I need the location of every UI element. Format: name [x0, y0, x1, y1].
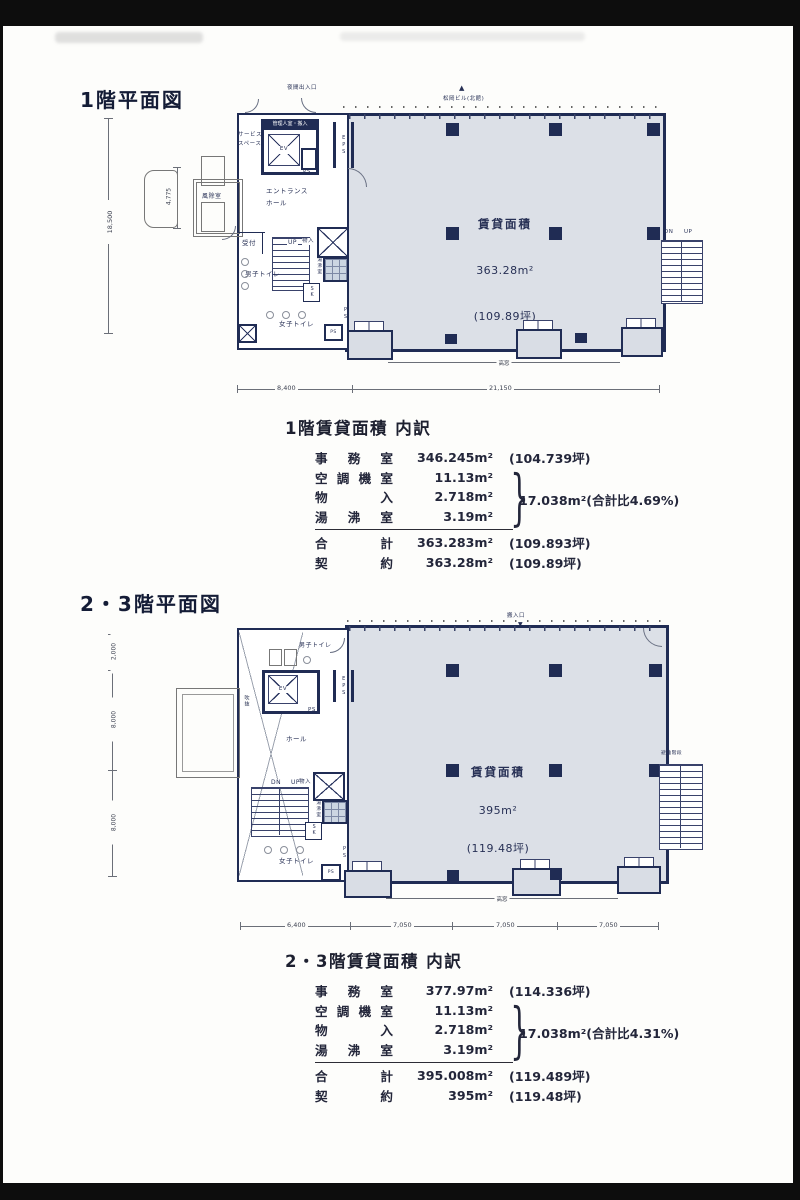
- table-contract-row: 契約 363.28m² (109.89坪): [285, 553, 715, 573]
- dim-tick: [658, 922, 659, 930]
- column: [549, 664, 562, 677]
- toilet-fixture: [282, 311, 290, 319]
- scan-smudge: [55, 32, 203, 43]
- toilet-fixture: [241, 270, 249, 278]
- ext-stair-up-label: UP: [684, 229, 692, 236]
- sk-label: SK: [308, 287, 314, 299]
- mens-toilet-label: 男子トイレ: [245, 270, 280, 278]
- row-value: 2.718m²: [393, 1022, 493, 1037]
- toilet-fixture: [298, 311, 306, 319]
- toilet-stall: [269, 649, 282, 666]
- toilet-fixture: [264, 846, 272, 854]
- planter-shape: [144, 170, 178, 228]
- dim-cap: [108, 770, 117, 771]
- row-value: 11.13m²: [393, 1003, 493, 1018]
- sk-closet: SK: [303, 283, 320, 302]
- kitchenette-sink: [323, 257, 349, 282]
- column: [549, 123, 562, 136]
- row-value: 363.28m²: [393, 555, 493, 570]
- highwindow-line: 高窓: [388, 362, 620, 363]
- dim-8000: 8,000: [111, 698, 118, 742]
- atrium-label: 吹抜: [243, 695, 250, 707]
- row-label: 契約: [315, 1086, 393, 1105]
- entrance-porch: [516, 329, 562, 359]
- ev-label: EV: [279, 146, 289, 153]
- sk-closet: SK: [305, 822, 322, 840]
- rental-area-tsubo: (119.48坪): [443, 839, 553, 858]
- stair-up-label: UP: [287, 239, 298, 247]
- row-value: 3.19m²: [393, 509, 493, 524]
- column: [649, 664, 662, 677]
- ext-stair-dn-label: DN: [664, 229, 673, 236]
- ev-label: EV: [278, 686, 288, 693]
- windbreak-label: 風除室: [202, 193, 222, 201]
- admin-room-label: 管理人室・搬入: [272, 121, 307, 128]
- bench-shape: [201, 202, 225, 232]
- entrance-porch: [621, 327, 663, 357]
- dim-2000: 2,000: [111, 630, 118, 674]
- dim-6400: 6,400: [285, 921, 308, 929]
- ps-box: [301, 148, 317, 170]
- toilet-fixture: [266, 311, 274, 319]
- row-note: (119.48坪): [509, 1086, 582, 1105]
- table-brace-note: 17.038m²(合計比4.31%): [519, 1023, 679, 1042]
- column: [647, 123, 660, 136]
- door-arc: [245, 99, 259, 113]
- dim-cap: [104, 333, 113, 334]
- row-label: 契約: [315, 553, 393, 572]
- stairs: [251, 787, 309, 837]
- partition: [237, 232, 265, 233]
- table-brace-note: 17.038m²(合計比4.69%): [519, 490, 679, 509]
- row-value: 2.718m²: [393, 489, 493, 504]
- column: [447, 870, 459, 882]
- row-label: 湯沸室: [315, 1040, 393, 1059]
- kitchenette-label: 湯沸室: [315, 257, 321, 274]
- rental-area-text: 賃貸面積 395m² (119.48坪): [443, 744, 553, 877]
- dim-7050: 7,050: [494, 921, 517, 929]
- night-exit-label: 夜間出入口: [287, 85, 317, 92]
- north-building-label: 松岡ビル(北館): [443, 96, 484, 103]
- row-note: (119.489坪): [509, 1066, 590, 1085]
- document-sheet: 1階平面図 夜間出入口 ▲ 松岡ビル(北館) 賃貸面積 363.28m² (10…: [3, 26, 793, 1183]
- ps-label: PS: [308, 707, 316, 714]
- row-label: 空調機室: [315, 468, 393, 487]
- eps-room: EPS: [333, 122, 354, 168]
- toilet-fixture: [296, 846, 304, 854]
- table-row: 事務室 377.97m² (114.336坪): [285, 981, 715, 1001]
- grid-dots: [347, 620, 669, 622]
- ps-shaft-label: PS: [341, 846, 348, 860]
- ps-box-bottom: PS: [324, 324, 343, 341]
- storage-label: 物入: [302, 238, 314, 245]
- eps-label: EPS: [340, 676, 347, 697]
- dim-tick: [350, 922, 351, 930]
- area-table-1f: 1階賃貸面積 内訳 事務室 346.245m² (104.739坪) 空調機室 …: [285, 415, 715, 572]
- dim-7050: 7,050: [391, 921, 414, 929]
- row-note: (109.89坪): [509, 553, 582, 572]
- row-value: 3.19m²: [393, 1042, 493, 1057]
- scan-frame-top: [0, 0, 800, 26]
- door-arc: [301, 98, 316, 113]
- table-row: 事務室 346.245m² (104.739坪): [285, 448, 715, 468]
- dim-line-bottom: [237, 389, 660, 390]
- atrium-opening-inner: [182, 694, 234, 772]
- column: [647, 227, 660, 240]
- dim-cap: [104, 118, 113, 119]
- entrance-porch: [347, 330, 393, 360]
- entrance-hall-label: エントランス ホール: [266, 185, 308, 210]
- row-value: 363.283m²: [393, 535, 493, 550]
- atrium-void-lines: [239, 632, 303, 876]
- toilet-fixture: [303, 656, 311, 664]
- row-label: 事務室: [315, 448, 393, 467]
- stair-divider: [681, 240, 682, 302]
- table-row: 湯沸室 3.19m²: [285, 507, 715, 527]
- table-rule: [315, 529, 513, 530]
- stair-divider: [279, 787, 280, 835]
- entrance-porch: [617, 866, 661, 894]
- highwindow-label: 高窓: [496, 359, 511, 367]
- dim-tick: [352, 385, 353, 393]
- row-value: 346.245m²: [393, 450, 493, 465]
- mens-toilet-label: 男子トイレ: [299, 642, 332, 650]
- plan1-title: 1階平面図: [80, 84, 184, 113]
- window-mullions: [349, 626, 660, 631]
- grid-dots: [343, 106, 665, 108]
- table-rule: [315, 1062, 513, 1063]
- storage-label: 物入: [299, 779, 311, 786]
- duct-hatch: [238, 324, 257, 343]
- row-value: 395m²: [393, 1088, 493, 1103]
- scan-frame-right: [793, 0, 800, 1200]
- highwindow-line: 高窓: [386, 898, 618, 899]
- rental-area-label: 賃貸面積: [443, 763, 553, 782]
- table-total-row: 合計 363.283m² (109.893坪): [285, 533, 715, 553]
- column: [445, 334, 457, 344]
- dim-21150: 21,150: [487, 384, 514, 392]
- row-label: 物入: [315, 487, 393, 506]
- stair-dn-label: DN: [271, 779, 281, 787]
- eps-room: EPS: [333, 670, 354, 702]
- escape-stair-label: 避難階段: [661, 751, 682, 757]
- reception-label: 受付: [242, 239, 256, 247]
- dim-8400: 8,400: [275, 384, 298, 392]
- womens-toilet-label: 女子トイレ: [279, 320, 314, 328]
- storage-hatch: [313, 772, 345, 801]
- column: [446, 664, 459, 677]
- ps-bottom-label: PS: [328, 870, 335, 876]
- dim-8000b: 8,000: [111, 801, 118, 845]
- external-stairs: [661, 240, 703, 304]
- ev-car: EV: [268, 675, 298, 704]
- stair-divider: [680, 764, 681, 848]
- kitchenette-label: 湯沸室: [314, 800, 320, 817]
- dim-cap: [173, 167, 181, 168]
- toilet-fixture: [280, 846, 288, 854]
- bench-shape: [201, 156, 225, 186]
- table-row: 湯沸室 3.19m²: [285, 1040, 715, 1060]
- column: [575, 333, 587, 343]
- highwindow-label: 高窓: [494, 895, 509, 903]
- dim-tick: [237, 385, 238, 393]
- escape-stairs: [659, 764, 703, 850]
- column: [550, 868, 562, 880]
- row-label: 事務室: [315, 981, 393, 1000]
- row-note: (109.893坪): [509, 533, 590, 552]
- window-mullions: [349, 114, 657, 119]
- storage-hatch: [317, 227, 349, 258]
- eps-label: EPS: [340, 135, 347, 156]
- toilet-fixture: [241, 282, 249, 290]
- partition: [262, 232, 263, 254]
- scan-smudge: [340, 32, 585, 41]
- rental-area-label: 賃貸面積: [450, 213, 560, 236]
- row-label: 合計: [315, 533, 393, 552]
- row-value: 395.008m²: [393, 1068, 493, 1083]
- rental-area-m2: 395m²: [443, 801, 553, 820]
- plan2-title: 2・3階平面図: [80, 588, 222, 617]
- dim-7050: 7,050: [597, 921, 620, 929]
- table-contract-row: 契約 395m² (119.48坪): [285, 1086, 715, 1106]
- dim-tick: [659, 385, 660, 393]
- entrance-porch: [344, 870, 392, 898]
- kitchenette-sink: [322, 800, 348, 824]
- service-space-label: サービス スペース: [238, 131, 262, 149]
- row-label: 物入: [315, 1020, 393, 1039]
- toilet-stall: [284, 649, 297, 666]
- womens-toilet-label: 女子トイレ: [279, 857, 314, 865]
- admin-room-band: 管理人室・搬入: [261, 119, 319, 130]
- hall-label: ホール: [286, 735, 307, 743]
- dim-18500: 18,500: [106, 200, 114, 244]
- table1-title: 1階賃貸面積 内訳: [285, 415, 715, 439]
- dim-tick: [557, 922, 558, 930]
- dim-tick: [240, 922, 241, 930]
- row-label: 湯沸室: [315, 507, 393, 526]
- north-building-marker-icon: ▲: [459, 84, 465, 93]
- table-row: 空調機室 11.13m²: [285, 468, 715, 488]
- ps-bottom-label: PS: [330, 330, 337, 336]
- ps-shaft-label: PS: [342, 307, 349, 321]
- sk-label: SK: [310, 825, 316, 837]
- dim-cap: [108, 876, 117, 877]
- ps-label: PS: [303, 169, 311, 176]
- table2-title: 2・3階賃貸面積 内訳: [285, 948, 715, 972]
- dim-cap: [173, 228, 181, 229]
- ev-car: EV: [268, 134, 300, 166]
- row-label: 空調機室: [315, 1001, 393, 1020]
- table-total-row: 合計 395.008m² (119.489坪): [285, 1066, 715, 1086]
- ps-box-bottom: PS: [321, 864, 341, 881]
- toilet-fixture: [241, 258, 249, 266]
- area-table-23f: 2・3階賃貸面積 内訳 事務室 377.97m² (114.336坪) 空調機室…: [285, 948, 715, 1105]
- rental-area-m2: 363.28m²: [450, 259, 560, 282]
- dim-tick: [452, 922, 453, 930]
- column: [446, 123, 459, 136]
- row-value: 11.13m²: [393, 470, 493, 485]
- table-row: 空調機室 11.13m²: [285, 1001, 715, 1021]
- scan-frame-bottom: [0, 1183, 800, 1200]
- row-label: 合計: [315, 1066, 393, 1085]
- row-value: 377.97m²: [393, 983, 493, 998]
